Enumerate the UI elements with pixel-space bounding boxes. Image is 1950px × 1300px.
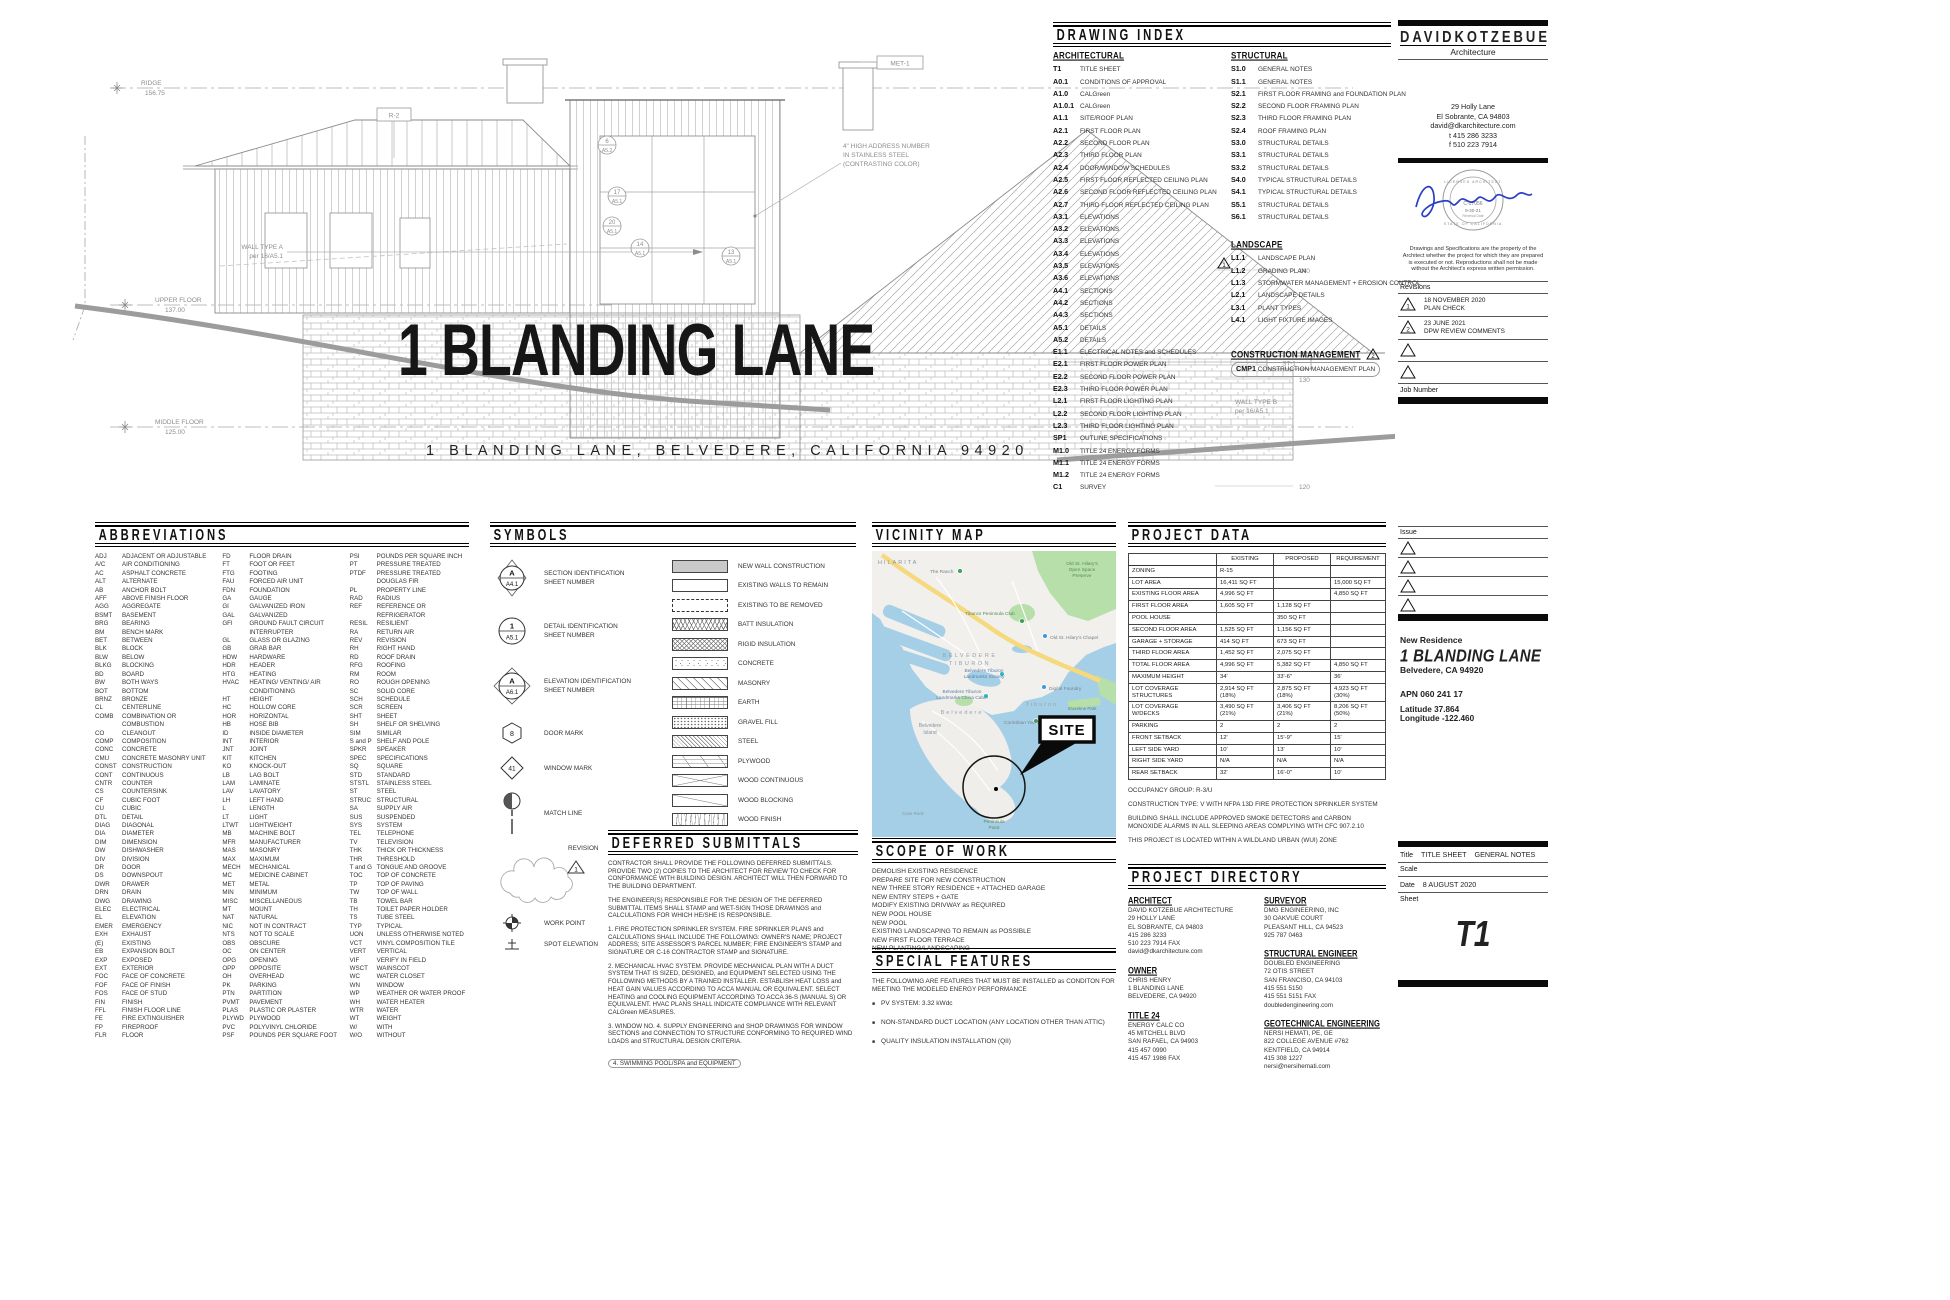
abbreviation-row: EXP EXPOSED [95,957,214,965]
proposed-value: 1,128 SQ FT [1274,601,1331,613]
abbreviation-row: L LENGTH [222,805,341,813]
revision-1-triangle-icon: 1 [1217,257,1231,269]
special-features-list: ■ PV SYSTEM: 3.32 kWdc ■ NON-STANDARD DU… [872,1000,1116,1046]
existing-value: 32' [1217,768,1274,780]
table-row: LOT COVERAGE STRUCTURES 2,914 SQ FT (18%… [1129,683,1386,702]
abbreviation-row: PVC POLYVINYL CHLORIDE [222,1024,341,1032]
abbreviation-row: TP TOP OF PAVING [350,881,469,889]
sheet-title: THIRD FLOOR PLAN [1080,150,1142,161]
requirement-value: 4,850 SQ FT [1331,660,1386,672]
definition: BLOCK [122,645,214,653]
abbreviation: TYP [350,923,377,931]
abbreviation-row: REF REFERENCE OR REFRIGERATOR [350,603,469,620]
existing-value: 414 SQ FT [1217,636,1274,648]
material-legend-row: PLYWOOD [672,755,856,768]
definition: FOOT OR FEET [249,561,341,569]
date-label: Date [1400,882,1415,889]
abbreviation-row: OPG OPENING [222,957,341,965]
sheet-info-block: Title TITLE SHEET GENERAL NOTES Scale Da… [1398,841,1548,987]
definition: DISHWASHER [122,847,214,855]
divider-bar [1398,158,1548,163]
abbreviation-row: LAV LAVATORY [222,788,341,796]
index-row: A3.6 ELEVATIONS [1053,272,1221,284]
sheet-title: SECOND FLOOR REFLECTED CEILING PLAN [1080,187,1217,198]
abbreviation-row: ALT ALTERNATE [95,578,214,586]
map-label: Preserve [1072,573,1092,579]
abbreviation-row: BRG BEARING [95,620,214,628]
definition: WATER HEATER [377,999,469,1007]
index-row: A2.1 FIRST FLOOR PLAN [1053,125,1221,137]
abbreviation: PTN [222,990,249,998]
sheet-number: SP1 [1053,432,1080,443]
definition: CUBIC [122,805,214,813]
abbreviation: RH [350,645,377,653]
abbreviation-row: LB LAG BOLT [222,772,341,780]
abbreviation-row: FFL FINISH FLOOR LINE [95,1007,214,1015]
directory-lines: DAVID KOTZEBUE ARCHITECTURE 29 HOLLY LAN… [1128,907,1250,957]
abbreviation: OC [222,948,249,956]
sheet-title: DOOR/WINDOW SCHEDULES [1080,163,1170,174]
svg-text:A: A [509,677,515,686]
definition: FINISH [122,999,214,1007]
issue-row [1398,576,1548,595]
sheet-number: A4.1 [1053,285,1080,296]
definition: MECHANICAL [249,864,341,872]
abbreviation-row: DIAG DIAGONAL [95,822,214,830]
project-data-notes: OCCUPANCY GROUP: R-3/U CONSTRUCTION TYPE… [1128,787,1386,845]
definition: DIAGONAL [122,822,214,830]
abbreviation-row: SA SUPPLY AIR [350,805,469,813]
section-identification-icon: A A4.1 [495,558,529,598]
directory-group: GEOTECHNICAL ENGINEERING NERSI HEMATI, P… [1264,1019,1386,1071]
proposed-value [1274,565,1331,577]
abbreviation: T and G [350,864,377,872]
definition: COMPOSITION [122,738,214,746]
abbreviation: OPG [222,957,249,965]
abbreviation-row: EXH EXHAUST [95,931,214,939]
abbreviation-row: DIV DIVISION [95,856,214,864]
abbreviation: SHT [350,713,377,721]
detail-mark-number: 13 [728,250,735,256]
definition: HEATING/ VENTING/ AIR CONDITIONING [249,679,341,696]
index-row: L1.1 LANDSCAPE PLAN [1231,252,1391,264]
abbreviation: CS [95,788,122,796]
abbreviation: HDW [222,654,249,662]
sheet-number: S3.2 [1231,162,1258,173]
sheet-number: T1 [1053,63,1080,74]
index-row: L2.3 THIRD FLOOR LIGHTING PLAN [1053,420,1221,432]
existing-value: 4,996 SQ FT [1217,660,1274,672]
abbreviation-row: TS TUBE STEEL [350,914,469,922]
scale-label: Scale [1400,866,1418,873]
detail-mark-number: 14 [637,242,644,248]
material-label: GRAVEL FILL [738,718,778,727]
definition: RESILIENT [377,620,469,628]
abbreviation: HT [222,696,249,704]
sheet-title: LANDSCAPE DETAILS [1258,290,1325,301]
sheet-number: S3.0 [1231,137,1258,148]
abbreviation: ID [222,730,249,738]
abbreviation: NIC [222,923,249,931]
index-row: A2.6 SECOND FLOOR REFLECTED CEILING PLAN [1053,186,1221,198]
definition: MOUNT [249,906,341,914]
abbreviation-row: T and G TONGUE AND GROOVE [350,864,469,872]
index-row: A1.0.1 CALGreen [1053,100,1221,112]
window [330,213,372,268]
row-label: REAR SETBACK [1129,768,1217,780]
chimney-cap [503,59,547,65]
abbreviation-row: THR THRESHOLD [350,856,469,864]
abbreviation-row: STSTL STAINLESS STEEL [350,780,469,788]
firm-last-name: KOTZEBUE [1454,28,1550,46]
definition: MASONRY [249,847,341,855]
abbreviation: PTDF [350,570,377,587]
sheet-number: S2.2 [1231,100,1258,111]
abbreviation: FOC [95,973,122,981]
revision-row [1398,361,1548,383]
material-legend-row: EXISTING TO BE REMOVED [672,599,856,612]
abbreviation-row: CONT CONTINUOUS [95,772,214,780]
abbreviation: OBS [222,940,249,948]
col-header-requirement: REQUIREMENT [1331,554,1386,566]
definition: COUNTER [122,780,214,788]
definition: DRAWING [122,898,214,906]
sheet-title: FIRST FLOOR PLAN [1080,126,1141,137]
title-value: TITLE SHEET [1421,850,1467,859]
abbreviation-row: EXT EXTERIOR [95,965,214,973]
abbreviation: SYS [350,822,377,830]
abbreviation: PLAS [222,1007,249,1015]
abbreviation: THR [350,856,377,864]
definition: POUNDS PER SQUARE FOOT [249,1032,341,1040]
abbreviation-row: RESIL RESILIENT [350,620,469,628]
abbreviation-row: BLK BLOCK [95,645,214,653]
abbreviation-row: FP FIREPROOF [95,1024,214,1032]
definition: DOWNSPOUT [122,872,214,880]
sheet-title: FIRST FLOOR LIGHTING PLAN [1080,396,1173,407]
index-row: L4.1 LIGHT FIXTURE IMAGES [1231,314,1391,326]
definition: ALTERNATE [122,578,214,586]
definition: RETURN AIR [377,629,469,637]
vicinity-map-title: VICINITY MAP [872,525,1092,545]
deferred-item-2: 2. MECHANICAL HVAC SYSTEM. PROVIDE MECHA… [608,963,858,1017]
abbreviation: EL [95,914,122,922]
issue-row [1398,595,1548,614]
project-note: BUILDING SHALL INCLUDE APPROVED SMOKE DE… [1128,815,1386,831]
definition: RIGHT HAND [377,645,469,653]
abbreviation-row: EB EXPANSION BOLT [95,948,214,956]
abbreviation-row: DRN DRAIN [95,889,214,897]
abbreviation-row: TV TELEVISION [350,839,469,847]
definition: PRESSURE TREATED [377,561,469,569]
abbreviation-row: AC ASPHALT CONCRETE [95,570,214,578]
scope-item: PREPARE SITE FOR NEW CONSTRUCTION [872,877,1116,886]
directory-heading: OWNER [1128,965,1250,975]
row-label: MAXIMUM HEIGHT [1129,671,1217,683]
left-roof [195,120,570,166]
abbreviation-row: INT INTERIOR [222,738,341,746]
section-identification-label: SECTION IDENTIFICATION SHEET NUMBER [544,569,624,587]
index-row: SP1 OUTLINE SPECIFICATIONS [1053,432,1221,444]
definition: WEATHER OR WATER PROOF [377,990,469,998]
col-header [1129,554,1217,566]
proposed-value: N/A [1274,756,1331,768]
special-feature-item: ■ NON-STANDARD DUCT LOCATION (ANY LOCATI… [872,1019,1116,1027]
definition: PARTITION [249,990,341,998]
index-row: A2.2 SECOND FLOOR PLAN [1053,137,1221,149]
map-label: Belvedere Tiburon [965,668,1004,674]
definition: FIREPROOF [122,1024,214,1032]
table-row: LOT AREA 16,411 SQ FT 15,000 SQ FT [1129,577,1386,589]
sheet-number: T1 [1398,915,1548,956]
definition: TUBE STEEL [377,914,469,922]
map-label: Belvedere [919,723,942,729]
requirement-value: 4,850 SQ FT [1331,589,1386,601]
definition: HEADER [249,662,341,670]
definition: GLASS OR GLAZING [249,637,341,645]
material-hatch-swatch [672,774,728,787]
definition: LIGHT [249,814,341,822]
abbreviation-row: PSI POUNDS PER SQUARE INCH [350,553,469,561]
revision-cloud-icon: 1 [490,853,610,905]
material-label: EXISTING WALLS TO REMAIN [738,581,828,590]
material-hatch-swatch [672,599,728,612]
abbreviation-row: LH LEFT HAND [222,797,341,805]
abbreviation-row: SCR SCREEN [350,704,469,712]
directory-lines: DOUBLED ENGINEERING 72 OTIS STREET SAN F… [1264,960,1386,1010]
abbreviation-row: AFF ABOVE FINISH FLOOR [95,595,214,603]
special-feature-item: ■ PV SYSTEM: 3.32 kWdc [872,1000,1116,1008]
abbreviation: W/ [350,1024,377,1032]
definition: WINDOW [377,982,469,990]
scope-item: NEW POOL [872,920,1116,929]
special-features-title: SPECIAL FEATURES [872,951,1092,971]
section-identification-item: A A4.1 SECTION IDENTIFICATION SHEET NUMB… [490,558,658,598]
index-row: A5.1 DETAILS [1053,322,1221,334]
definition: AIR CONDITIONING [122,561,214,569]
index-landscape-list: L1.1 LANDSCAPE PLAN L1.2 GRADING PLAN L1… [1231,252,1391,326]
table-row: TOTAL FLOOR AREA 4,996 SQ FT 5,382 SQ FT… [1129,660,1386,672]
index-row: A4.1 SECTIONS [1053,285,1221,297]
abbreviation: VCT [350,940,377,948]
abbreviation-row: FTG FOOTING [222,570,341,578]
abbreviation-row: NTS NOT TO SCALE [222,931,341,939]
detail-mark-sheet: A5.2 [602,148,613,154]
abbreviation-row: MFR MANUFACTURER [222,839,341,847]
existing-value: R-15 [1217,565,1274,577]
abbreviation-row: FOS FACE OF STUD [95,990,214,998]
architect-firm-name: DAVID KOTZEBUE [1398,24,1548,47]
abbreviation: BLKG [95,662,122,670]
definition: FIRE EXTINGUISHER [122,1015,214,1023]
detail-mark-sheet: A5.1 [612,199,623,205]
abbreviation-row: OPP OPPOSITE [222,965,341,973]
sheet-number: L4.1 [1231,314,1258,325]
abbreviation: FAU [222,578,249,586]
chimney [507,63,543,103]
definition: CONTINUOUS [122,772,214,780]
abbreviation-row: DIA DIAMETER [95,830,214,838]
sheet-title: LANDSCAPE PLAN [1258,253,1315,264]
sheet-title: THIRD FLOOR FRAMING PLAN [1258,113,1351,124]
abbreviation-row: HOR HORIZONTAL [222,713,341,721]
abbreviations-col2: FD FLOOR DRAIN FT FOOT OR FEET FTG FOOTI… [222,553,341,1041]
abbreviation: SH [350,721,377,729]
sheet-title: THIRD FLOOR LIGHTING PLAN [1080,421,1174,432]
abbreviation-row: WC WATER CLOSET [350,973,469,981]
map-site-dot [994,787,998,791]
abbreviation: HB [222,721,249,729]
abbreviation-row: GAL GALVANIZED [222,612,341,620]
project-data-rows: ZONING R-15 LOT AREA 16,411 SQ FT 15,000… [1129,565,1386,779]
abbreviation: COMP [95,738,122,746]
abbreviation: GFI [222,620,249,637]
abbreviation-row: DS DOWNSPOUT [95,872,214,880]
abbreviation-row: MIN MINIMUM [222,889,341,897]
abbreviation-row: GL GLASS OR GLAZING [222,637,341,645]
abbreviation: MFR [222,839,249,847]
abbreviation: FT [222,561,249,569]
existing-value: 2 [1217,720,1274,732]
revision-row: 2 23 JUNE 2021 DPW REVIEW COMMENTS [1398,316,1548,339]
existing-value [1217,612,1274,624]
abbreviation-row: EMER EMERGENCY [95,923,214,931]
index-row: M1.0 TITLE 24 ENERGY FORMS [1053,445,1221,457]
index-row: L1.2 GRADING PLAN [1231,265,1391,277]
definition: ELECTRICAL [122,906,214,914]
abbreviation-row: KIT KITCHEN [222,755,341,763]
definition: TOWEL BAR [377,898,469,906]
title-label: Title [1400,852,1413,859]
abbreviation-row: DIM DIMENSION [95,839,214,847]
row-label: LOT COVERAGE STRUCTURES [1129,683,1217,702]
definition: SUSPENDED [377,814,469,822]
abbreviation: INT [222,738,249,746]
definition: HEATING [249,671,341,679]
abbreviation-row: MC MEDICINE CABINET [222,872,341,880]
abbreviation-row: FOC FACE OF CONCRETE [95,973,214,981]
abbreviation: FLR [95,1032,122,1040]
definition: POLYVINYL CHLORIDE [249,1024,341,1032]
abbreviation: LB [222,772,249,780]
definition: SCREEN [377,704,469,712]
work-point-label: WORK POINT [544,919,585,928]
abbreviation: FIN [95,999,122,1007]
definition: BENCH MARK [122,629,214,637]
abbreviation-row: RA RETURN AIR [350,629,469,637]
abbreviation-row: CS COUNTERSINK [95,788,214,796]
svg-text:A4.1: A4.1 [506,582,519,588]
sheet-title: DETAILS [1080,335,1106,346]
sheet-number: L1.1 [1231,252,1258,263]
sheet-number: E2.3 [1053,383,1080,394]
directory-heading: GEOTECHNICAL ENGINEERING [1264,1018,1386,1028]
definition: OBSCURE [249,940,341,948]
material-label: PLYWOOD [738,757,770,766]
row-label: PARKING [1129,720,1217,732]
definition: VINYL COMPOSITION TILE [377,940,469,948]
abbreviation-row: WT WEIGHT [350,1015,469,1023]
abbreviation-row: SUS SUSPENDED [350,814,469,822]
special-feature-item: ■ QUALITY INSULATION INSTALLATION (QII) [872,1038,1116,1046]
scope-item: NEW ENTRY STEPS + GATE [872,894,1116,903]
map-label: Shoreline Park [1068,706,1098,711]
abbreviation-row: MISC MISCELLANEOUS [222,898,341,906]
definition: TELEVISION [377,839,469,847]
abbreviation: TV [350,839,377,847]
deferred-submittals-panel: DEFERRED SUBMITTALS CONTRACTOR SHALL PRO… [608,830,858,1074]
abbreviation-row: CO CLEANOUT [95,730,214,738]
architect-stamp: LICENSED ARCHITECT C-17056 9-30-21 Renew… [1398,167,1548,233]
abbreviation-row: CU CUBIC [95,805,214,813]
abbreviation: WSCT [350,965,377,973]
deferred-paragraph: THE ENGINEER(S) RESPONSIBLE FOR THE DESI… [608,897,858,920]
symbols-title: SYMBOLS [490,525,819,545]
abbreviation: BD [95,671,122,679]
door-mark-icon: 8 [501,722,523,744]
sheet-number: A1.1 [1053,112,1080,123]
map-label: Old St. Hilary's Chapel [1050,635,1098,641]
abbreviation: ELEC [95,906,122,914]
detail-identification-icon: 1 A5.1 [497,616,527,646]
abbreviation: CONC [95,746,122,754]
definition: ROOM [377,671,469,679]
existing-value: 2,914 SQ FT (18%) [1217,683,1274,702]
abbreviation-row: PTN PARTITION [222,990,341,998]
abbreviation-row: HB HOSE BIB [222,721,341,729]
sheet-title: CALGreen [1080,89,1110,100]
sheet-number: A2.3 [1053,149,1080,160]
longitude: Longitude -122.460 [1400,714,1546,723]
directory-group: OWNER CHRIS HENRY 1 BLANDING LANE BELVED… [1128,966,1250,1002]
abbreviation-row: CNTR COUNTER [95,780,214,788]
special-features-intro: THE FOLLOWING ARE FEATURES THAT MUST BE … [872,978,1116,994]
existing-value: 16,411 SQ FT [1217,577,1274,589]
project-data-title: PROJECT DATA [1128,525,1360,545]
abbreviation-row: MT MOUNT [222,906,341,914]
drawing-index-header: DRAWING INDEX [1053,22,1391,47]
definition: STAINLESS STEEL [377,780,469,788]
col-header-proposed: PROPOSED [1274,554,1331,566]
sheet-sub-title: 1 BLANDING LANE, BELVEDERE, CALIFORNIA 9… [426,443,1029,459]
spot-elevation-icon [503,937,521,951]
proposed-value: 3,406 SQ FT (21%) [1274,702,1331,721]
definition: JOINT [249,746,341,754]
issue-triangle-icon [1400,541,1416,555]
svg-text:A5.1: A5.1 [506,636,519,642]
abbreviation-row: GFI GROUND FAULT CIRCUIT INTERRUPTER [222,620,341,637]
detail-mark-sheet: A5.1 [607,229,618,235]
material-label: WOOD CONTINUOUS [738,776,803,785]
abbreviation: NTS [222,931,249,939]
definition: EXHAUST [122,931,214,939]
map-label: TIBURON [949,661,991,667]
match-line-item: MATCH LINE [490,792,658,834]
svg-text:2: 2 [1372,354,1376,360]
definition: MINIMUM [249,889,341,897]
abbreviation-row: CONC CONCRETE [95,746,214,754]
definition: SPEAKER [377,746,469,754]
index-row: A0.1 CONDITIONS OF APPROVAL [1053,76,1221,88]
index-row: S3.2 STRUCTURAL DETAILS [1231,162,1391,174]
table-row: LOT COVERAGE W/DECKS 3,490 SQ FT (21%) 3… [1129,702,1386,721]
sheet-title: ELEVATIONS [1080,212,1119,223]
abbreviation: MIN [222,889,249,897]
abbreviation-row: TYP TYPICAL [350,923,469,931]
abbreviation-row: PTDF PRESSURE TREATED DOUGLAS FIR [350,570,469,587]
abbreviation-row: SPEC SPECIFICATIONS [350,755,469,763]
abbreviation: FTG [222,570,249,578]
